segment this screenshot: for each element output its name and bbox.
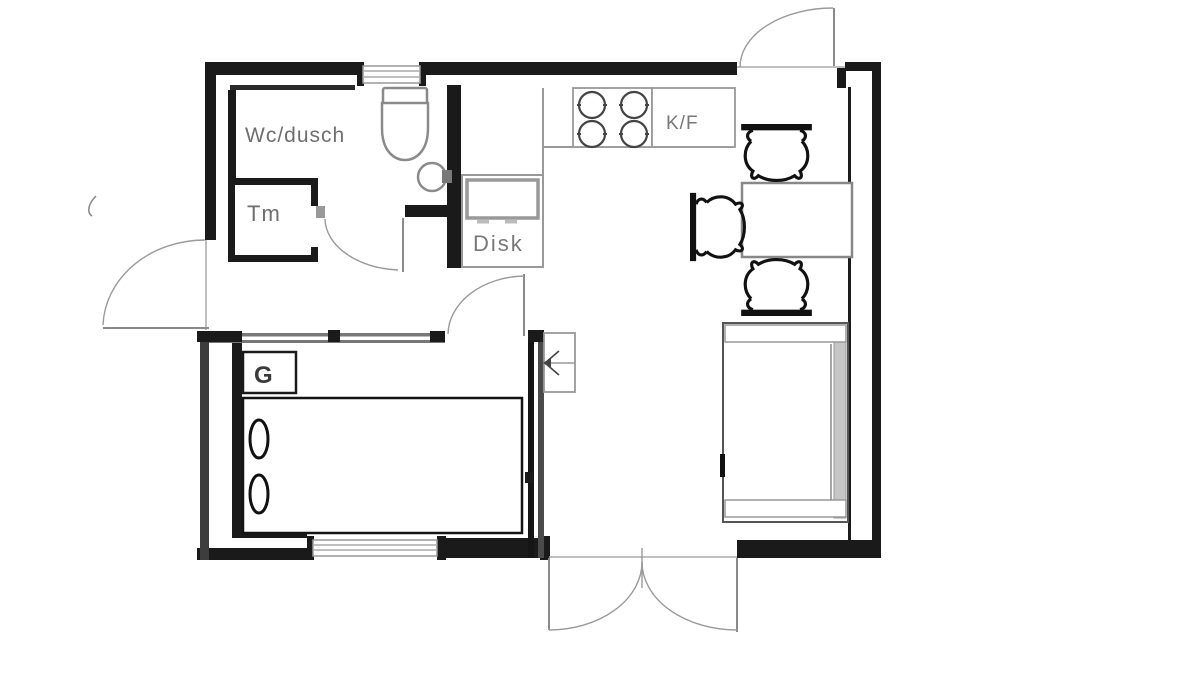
laundry-cabinet: Tm bbox=[228, 178, 325, 262]
laundry-cabinet-label: Tm bbox=[247, 201, 281, 226]
chair-left-icon bbox=[690, 193, 744, 261]
chair-top-icon bbox=[741, 124, 812, 180]
shaft-box bbox=[543, 333, 575, 392]
bathroom: Wc/dusch bbox=[245, 88, 452, 191]
bathroom-window bbox=[357, 62, 426, 86]
entry-double-door bbox=[549, 548, 737, 632]
bedroom-door bbox=[448, 274, 524, 336]
fridge-freezer-label: K/F bbox=[666, 113, 699, 134]
wardrobe-label: G bbox=[254, 362, 273, 389]
chair-bottom-icon bbox=[741, 260, 812, 316]
bathroom-label: Wc/dusch bbox=[245, 124, 345, 147]
bed-icon bbox=[243, 398, 522, 533]
pillow-icon bbox=[250, 475, 268, 513]
dining-area bbox=[690, 124, 852, 316]
sofa-icon bbox=[720, 323, 848, 522]
wardrobe: G bbox=[243, 352, 296, 393]
top-exterior-door bbox=[737, 8, 845, 67]
washbasin-icon bbox=[418, 163, 452, 191]
pillow-icon bbox=[250, 420, 268, 458]
bedroom: G bbox=[243, 352, 522, 533]
stove-icon bbox=[573, 88, 652, 147]
floor-plan-page: Tm bbox=[0, 0, 1200, 674]
stray-mark bbox=[89, 196, 96, 216]
sink-counter: Disk bbox=[462, 175, 543, 267]
sink-counter-label: Disk bbox=[473, 231, 524, 256]
left-exterior-door bbox=[103, 240, 209, 330]
toilet-icon bbox=[382, 88, 428, 160]
fridge-freezer: K/F bbox=[652, 88, 735, 147]
bedroom-window bbox=[313, 540, 437, 556]
floor-plan-drawing: Tm bbox=[0, 0, 1200, 674]
sink-basin-icon bbox=[467, 180, 538, 218]
bathroom-door bbox=[325, 218, 403, 272]
cabinet-hinge bbox=[316, 206, 325, 218]
dining-table bbox=[742, 183, 852, 257]
